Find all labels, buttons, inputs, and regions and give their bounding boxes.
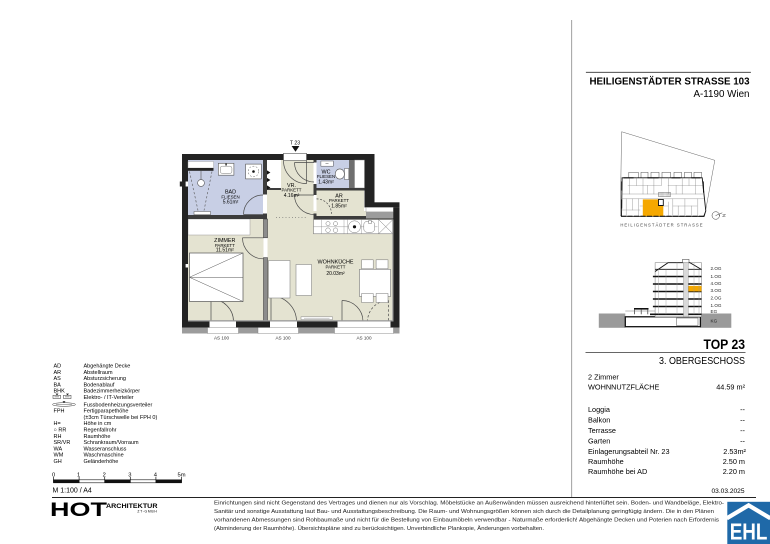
svg-text:BA: BA bbox=[54, 382, 62, 388]
svg-text:--: -- bbox=[740, 405, 745, 414]
svg-text:Abstellraum: Abstellraum bbox=[84, 370, 113, 376]
svg-text:Fertigparapethöhe: Fertigparapethöhe bbox=[84, 409, 129, 415]
svg-text:2: 2 bbox=[103, 472, 106, 478]
svg-text:Badezimmerheizkörper: Badezimmerheizkörper bbox=[84, 389, 141, 395]
svg-text:EHL: EHL bbox=[730, 520, 768, 544]
svg-text:Absturzsicherung: Absturzsicherung bbox=[84, 376, 127, 382]
svg-text:Schrankraum/Vorraum: Schrankraum/Vorraum bbox=[84, 440, 139, 446]
svg-text:2 Zimmer: 2 Zimmer bbox=[588, 373, 619, 382]
svg-text:Loggia: Loggia bbox=[588, 405, 611, 414]
svg-text:1: 1 bbox=[77, 472, 80, 478]
svg-text:AS: AS bbox=[54, 376, 62, 382]
svg-text:HEILIGENSTÄDTER STRASSE 103: HEILIGENSTÄDTER STRASSE 103 bbox=[590, 75, 750, 88]
svg-text:1.85m²: 1.85m² bbox=[331, 203, 347, 209]
svg-text:BHK: BHK bbox=[54, 389, 66, 395]
svg-text:3.OG: 3.OG bbox=[711, 288, 722, 293]
svg-text:AS 100: AS 100 bbox=[356, 336, 372, 341]
svg-text:HOT: HOT bbox=[50, 499, 107, 520]
svg-text:vorhandenen Abmessungen sind R: vorhandenen Abmessungen sind Rohbaumaße … bbox=[214, 517, 720, 523]
svg-text:4.OG: 4.OG bbox=[711, 281, 722, 286]
svg-text:AR: AR bbox=[54, 370, 62, 376]
svg-text:4.16m²: 4.16m² bbox=[284, 193, 300, 199]
svg-text:Terrasse: Terrasse bbox=[588, 426, 616, 435]
svg-text:Garten: Garten bbox=[588, 437, 610, 446]
svg-text:TOP 23: TOP 23 bbox=[704, 337, 746, 352]
svg-text:Höhe in cm: Höhe in cm bbox=[84, 421, 112, 427]
svg-text:AS 100: AS 100 bbox=[214, 336, 230, 341]
svg-text:M 1:100 / A4: M 1:100 / A4 bbox=[53, 488, 92, 495]
svg-text:(±3cm Türschwelle bei FPH 0): (±3cm Türschwelle bei FPH 0) bbox=[84, 415, 158, 421]
svg-text:T 23: T 23 bbox=[290, 141, 300, 147]
svg-text:A-1190 Wien: A-1190 Wien bbox=[694, 89, 750, 100]
svg-text:2.OG: 2.OG bbox=[711, 266, 722, 271]
svg-text:PARKETT: PARKETT bbox=[329, 198, 349, 203]
svg-text:--: -- bbox=[740, 426, 745, 435]
svg-text:EG: EG bbox=[711, 309, 718, 314]
svg-text:03.03.2025: 03.03.2025 bbox=[711, 488, 744, 495]
svg-text:FLIESEN: FLIESEN bbox=[221, 194, 239, 199]
svg-text:Sanitär und sonstige Ausstattu: Sanitär und sonstige Ausstattung laut Ba… bbox=[214, 509, 714, 515]
svg-text:--: -- bbox=[740, 437, 745, 446]
svg-text:AD: AD bbox=[54, 364, 62, 370]
svg-text:HEILIGENSTÄDTER STRASSE: HEILIGENSTÄDTER STRASSE bbox=[620, 223, 704, 228]
svg-text:N: N bbox=[722, 214, 727, 217]
svg-text:(Abminderung der Raumhöhe). Üb: (Abminderung der Raumhöhe). Übersichtspl… bbox=[214, 525, 544, 532]
svg-text:ZT-GMBH: ZT-GMBH bbox=[137, 509, 157, 513]
svg-text:H=: H= bbox=[54, 421, 61, 427]
svg-text:Raumhöhe: Raumhöhe bbox=[588, 457, 624, 466]
svg-text:KG: KG bbox=[711, 319, 718, 324]
svg-text:3. OBERGESCHOSS: 3. OBERGESCHOSS bbox=[659, 356, 745, 367]
svg-text:PARKETT: PARKETT bbox=[326, 264, 346, 269]
svg-text:RH: RH bbox=[54, 434, 62, 440]
svg-text:Einlagerungsabteil Nr. 23: Einlagerungsabteil Nr. 23 bbox=[588, 447, 670, 456]
svg-text:AS 100: AS 100 bbox=[275, 336, 291, 341]
svg-text:FPH: FPH bbox=[54, 409, 65, 415]
svg-text:Fussbodenheizungsverteiler: Fussbodenheizungsverteiler bbox=[84, 402, 153, 408]
svg-text:20.03m²: 20.03m² bbox=[326, 271, 345, 277]
svg-text:--: -- bbox=[740, 416, 745, 425]
svg-text:2.53m²: 2.53m² bbox=[723, 447, 746, 456]
svg-text:Wasseranschluss: Wasseranschluss bbox=[84, 446, 127, 452]
svg-text:5.61m²: 5.61m² bbox=[223, 200, 239, 206]
svg-text:44.59 m²: 44.59 m² bbox=[716, 383, 745, 392]
svg-text:GH: GH bbox=[54, 459, 62, 465]
svg-text:WOHNNUTZFLÄCHE: WOHNNUTZFLÄCHE bbox=[588, 383, 659, 392]
svg-text:1.OG: 1.OG bbox=[711, 274, 722, 279]
svg-text:11.51m²: 11.51m² bbox=[216, 247, 234, 253]
svg-text:Abgehängte Decke: Abgehängte Decke bbox=[84, 364, 131, 370]
svg-text:SR/VR: SR/VR bbox=[54, 440, 71, 446]
svg-text:Balkon: Balkon bbox=[588, 416, 610, 425]
svg-text:Raumhöhe bei AD: Raumhöhe bei AD bbox=[588, 467, 647, 476]
svg-text:3: 3 bbox=[128, 472, 131, 478]
svg-text:1.43m²: 1.43m² bbox=[318, 179, 334, 185]
svg-text:Elektro- / IT-Verteiler: Elektro- / IT-Verteiler bbox=[84, 395, 134, 401]
svg-text:WA: WA bbox=[54, 446, 63, 452]
svg-text:FLIESEN: FLIESEN bbox=[317, 174, 335, 179]
svg-text:Waschmaschine: Waschmaschine bbox=[84, 453, 124, 459]
svg-text:2.20 m: 2.20 m bbox=[723, 467, 745, 476]
svg-text:2.50 m: 2.50 m bbox=[723, 457, 745, 466]
svg-text:2.OG: 2.OG bbox=[711, 295, 722, 300]
svg-text:WM: WM bbox=[54, 453, 64, 459]
svg-text:1.OG: 1.OG bbox=[711, 303, 722, 308]
svg-text:Regenfallrohr: Regenfallrohr bbox=[84, 428, 117, 434]
svg-text:Bodenablauf: Bodenablauf bbox=[84, 382, 115, 388]
svg-text:○ RR: ○ RR bbox=[54, 428, 67, 434]
svg-text:Geländerhöhe: Geländerhöhe bbox=[84, 459, 119, 465]
svg-text:Einrichtungen sind nicht Gegen: Einrichtungen sind nicht Gegenstand des … bbox=[214, 501, 724, 507]
svg-text:PARKETT: PARKETT bbox=[282, 188, 302, 193]
svg-text:Raumhöhe: Raumhöhe bbox=[84, 434, 111, 440]
